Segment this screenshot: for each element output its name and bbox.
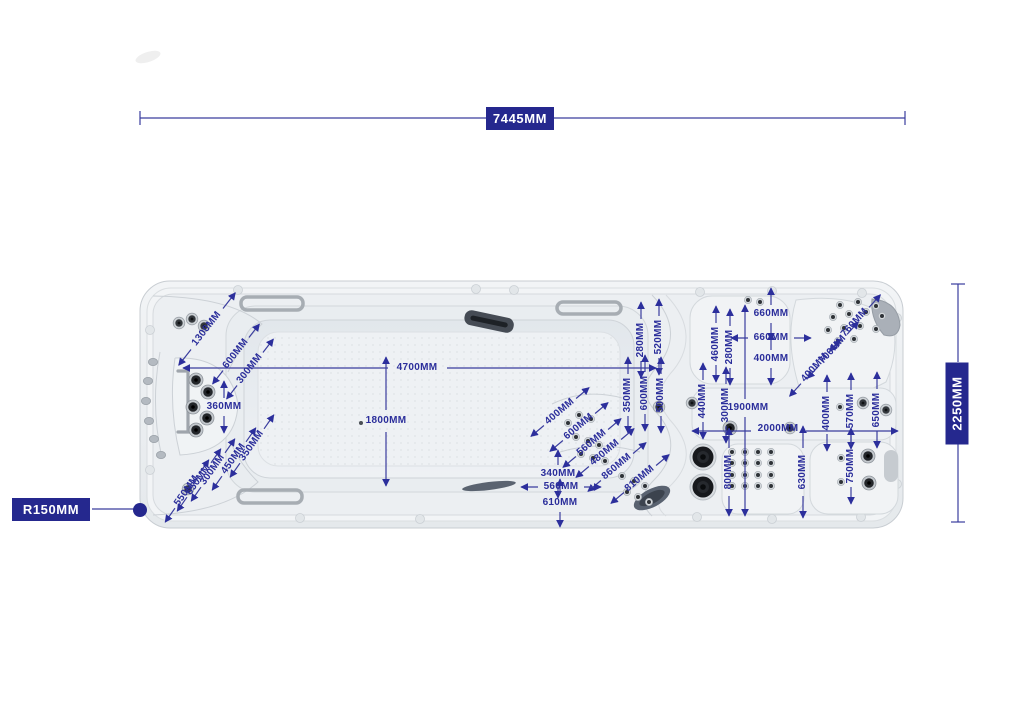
watermark-smudge [134,48,162,66]
floor-drain [359,421,363,425]
overall-width-label: 2250MM [946,363,969,445]
diagram-canvas: 1300MM600MM300MM360MM4700MM1800MM350MM45… [0,0,1024,724]
overall-length-label: 7445MM [486,107,554,130]
leader-dot [133,503,147,517]
corner-radius-label: R150MM [12,498,90,521]
swim-basin [226,306,648,492]
